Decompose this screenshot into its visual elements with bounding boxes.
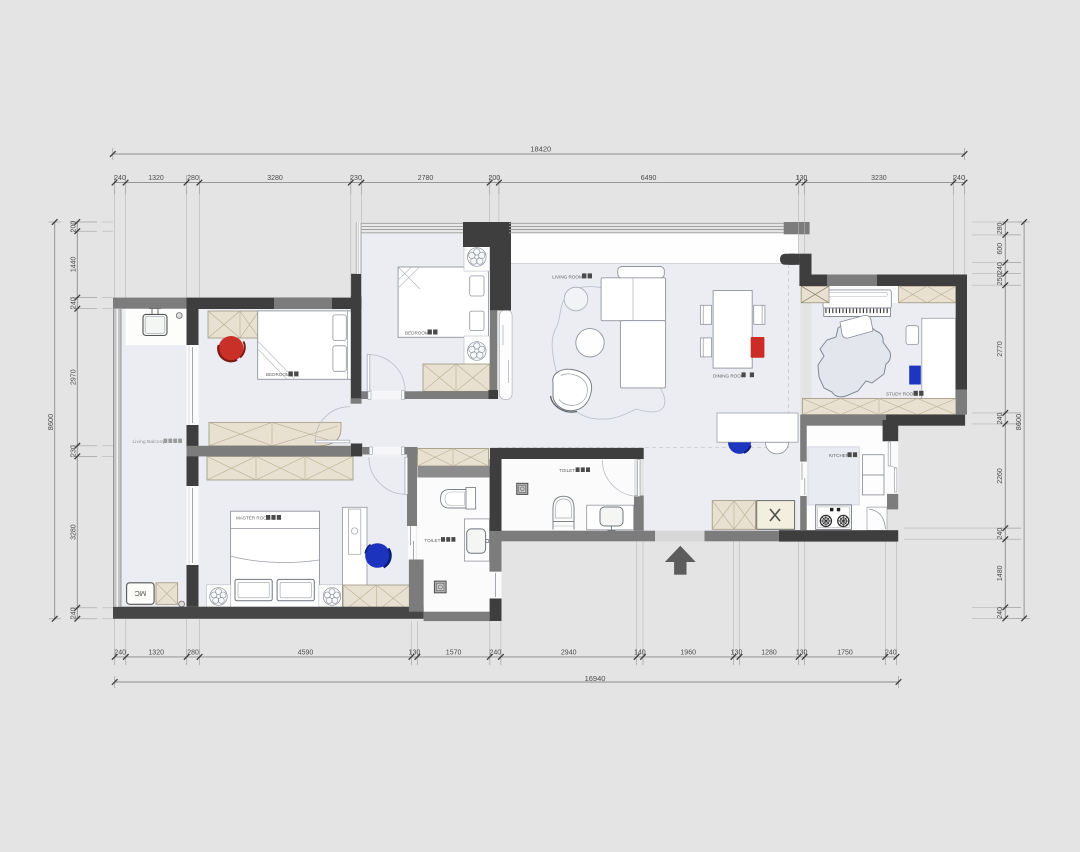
svg-text:8600: 8600: [46, 414, 55, 431]
svg-text:TOILET: TOILET: [424, 538, 440, 543]
svg-text:240: 240: [71, 297, 78, 309]
svg-text:240: 240: [997, 412, 1004, 424]
svg-text:250: 250: [997, 273, 1004, 285]
svg-text:18420: 18420: [530, 145, 551, 154]
svg-text:4590: 4590: [298, 649, 314, 656]
svg-text:BEDROOM: BEDROOM: [405, 330, 429, 335]
svg-text:1480: 1480: [997, 565, 1004, 581]
svg-text:1320: 1320: [148, 649, 164, 656]
svg-text:240: 240: [953, 175, 965, 182]
svg-text:1960: 1960: [680, 649, 696, 656]
svg-text:MC: MC: [134, 589, 146, 598]
svg-text:140: 140: [634, 649, 646, 656]
svg-text:240: 240: [114, 175, 126, 182]
svg-text:KITCHEN: KITCHEN: [829, 453, 849, 458]
svg-text:TOILET: TOILET: [559, 468, 575, 473]
svg-text:STUDY ROOM: STUDY ROOM: [886, 392, 917, 397]
svg-text:600: 600: [997, 243, 1004, 255]
svg-text:240: 240: [489, 649, 501, 656]
svg-text:240: 240: [997, 607, 1004, 619]
svg-text:1280: 1280: [761, 649, 777, 656]
svg-text:240: 240: [885, 649, 897, 656]
svg-text:2940: 2940: [561, 649, 577, 656]
svg-text:280: 280: [187, 175, 199, 182]
svg-text:280: 280: [187, 649, 199, 656]
svg-text:6490: 6490: [641, 175, 657, 182]
svg-text:240: 240: [997, 262, 1004, 274]
svg-text:16940: 16940: [585, 674, 606, 683]
svg-text:2260: 2260: [997, 468, 1004, 484]
svg-text:280: 280: [997, 222, 1004, 234]
svg-text:200: 200: [71, 221, 78, 233]
svg-text:1320: 1320: [148, 175, 164, 182]
svg-text:8600: 8600: [1014, 414, 1023, 431]
svg-text:3230: 3230: [871, 175, 887, 182]
svg-text:130: 130: [796, 175, 808, 182]
svg-text:LIVING ROOM: LIVING ROOM: [552, 274, 583, 279]
svg-text:130: 130: [731, 649, 743, 656]
svg-text:240: 240: [114, 649, 126, 656]
svg-text:240: 240: [997, 528, 1004, 540]
svg-text:130: 130: [796, 649, 808, 656]
svg-text:240: 240: [71, 607, 78, 619]
svg-text:2970: 2970: [71, 369, 78, 385]
svg-text:130: 130: [409, 649, 421, 656]
svg-text:2770: 2770: [997, 341, 1004, 357]
svg-text:1440: 1440: [71, 257, 78, 273]
svg-text:2780: 2780: [418, 175, 434, 182]
svg-text:230: 230: [71, 445, 78, 457]
svg-text:3280: 3280: [267, 175, 283, 182]
svg-text:MASTER ROOM: MASTER ROOM: [236, 516, 271, 521]
svg-text:BEDROOM: BEDROOM: [266, 372, 290, 377]
svg-text:230: 230: [350, 175, 362, 182]
svg-text:DINING ROOM: DINING ROOM: [713, 373, 745, 378]
svg-text:3280: 3280: [71, 524, 78, 540]
svg-text:200: 200: [488, 175, 500, 182]
svg-text:Living Balcony: Living Balcony: [133, 439, 166, 444]
svg-text:1750: 1750: [837, 649, 853, 656]
svg-text:1570: 1570: [446, 649, 462, 656]
